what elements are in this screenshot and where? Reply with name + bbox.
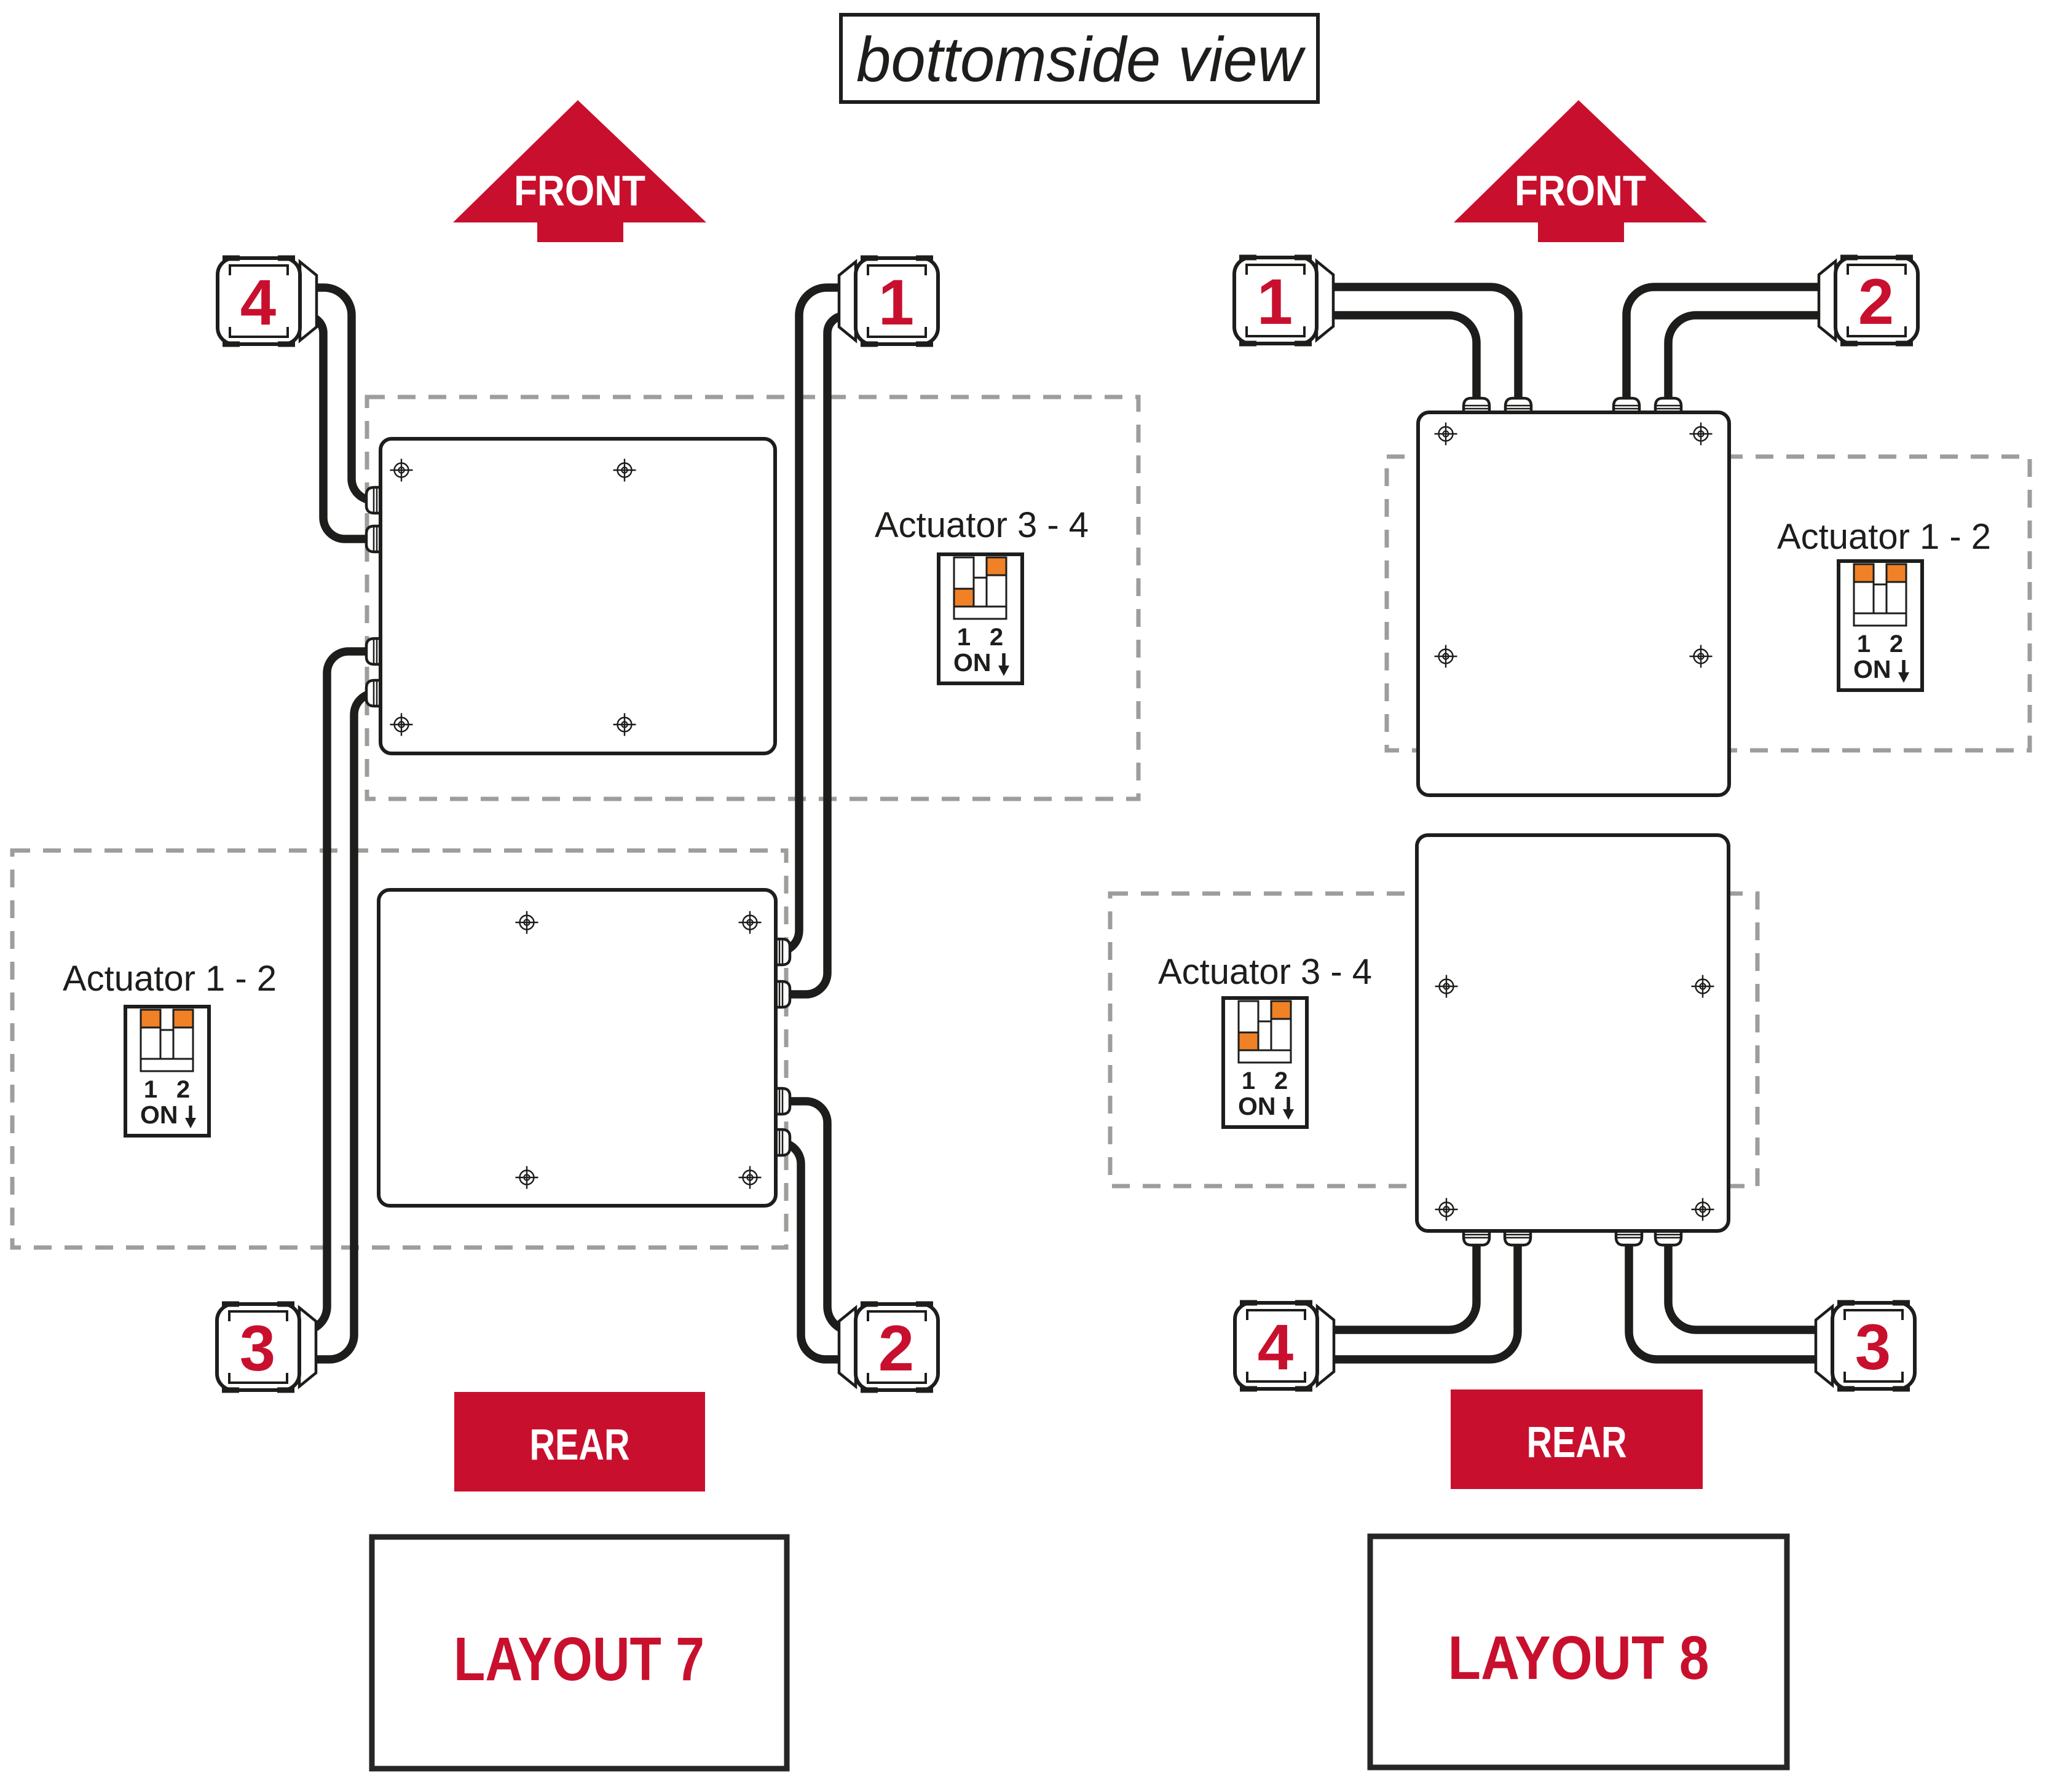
svg-text:LAYOUT 7: LAYOUT 7 <box>454 1625 704 1694</box>
svg-text:2: 2 <box>878 1313 914 1385</box>
svg-text:ON: ON <box>1853 655 1891 683</box>
svg-text:Actuator 3 - 4: Actuator 3 - 4 <box>875 505 1089 545</box>
svg-text:4: 4 <box>1258 1311 1293 1383</box>
svg-text:FRONT: FRONT <box>514 167 645 214</box>
svg-text:3: 3 <box>240 1313 275 1385</box>
svg-text:1: 1 <box>957 624 971 651</box>
svg-text:2: 2 <box>1274 1067 1288 1094</box>
svg-text:ON: ON <box>953 648 992 677</box>
svg-text:LAYOUT 8: LAYOUT 8 <box>1448 1624 1709 1692</box>
svg-text:ON: ON <box>1238 1092 1276 1120</box>
svg-text:1: 1 <box>1257 266 1293 338</box>
svg-text:bottomside view: bottomside view <box>856 24 1306 95</box>
svg-text:2: 2 <box>176 1076 190 1103</box>
svg-text:1: 1 <box>1242 1067 1255 1094</box>
svg-text:1: 1 <box>1857 631 1871 658</box>
svg-text:REAR: REAR <box>530 1421 630 1469</box>
svg-text:2: 2 <box>990 624 1003 651</box>
svg-text:2: 2 <box>1858 266 1894 338</box>
svg-text:Actuator 1 - 2: Actuator 1 - 2 <box>1777 517 1991 557</box>
svg-text:4: 4 <box>240 267 276 339</box>
svg-text:Actuator 3 - 4: Actuator 3 - 4 <box>1158 952 1372 992</box>
svg-text:REAR: REAR <box>1527 1418 1627 1467</box>
svg-text:ON: ON <box>140 1101 178 1129</box>
svg-text:1: 1 <box>878 267 914 339</box>
svg-text:1: 1 <box>144 1076 157 1103</box>
svg-text:3: 3 <box>1855 1311 1891 1383</box>
svg-text:FRONT: FRONT <box>1515 167 1646 214</box>
svg-text:2: 2 <box>1890 631 1903 658</box>
svg-text:Actuator 1 - 2: Actuator 1 - 2 <box>63 959 277 999</box>
